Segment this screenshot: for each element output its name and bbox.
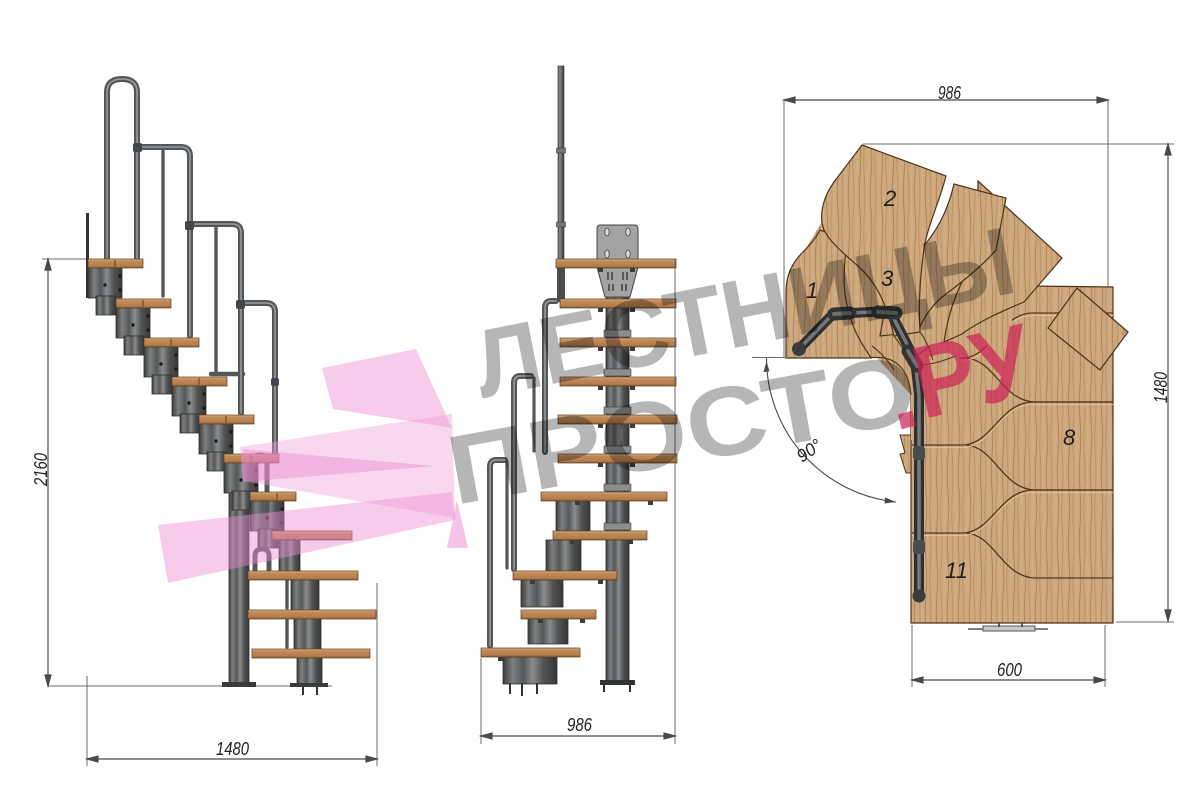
- svg-text:2160: 2160: [31, 453, 51, 487]
- svg-text:1480: 1480: [216, 739, 249, 759]
- svg-text:8: 8: [1063, 425, 1076, 450]
- svg-text:986: 986: [938, 83, 962, 103]
- svg-text:986: 986: [567, 715, 593, 735]
- svg-text:600: 600: [997, 660, 1022, 680]
- svg-text:2: 2: [883, 186, 896, 211]
- svg-text:1480: 1480: [1151, 372, 1171, 403]
- svg-text:11: 11: [945, 558, 968, 583]
